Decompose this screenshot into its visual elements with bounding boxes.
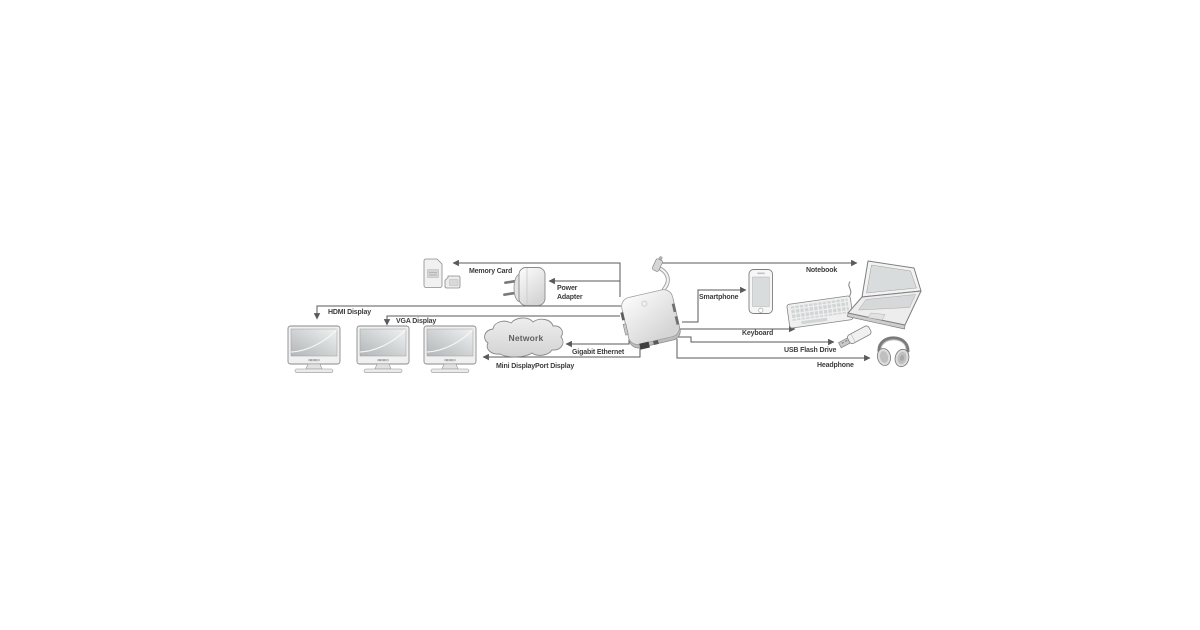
hdmi-display-label: HDMI Display — [328, 309, 371, 316]
network-cloud-icon: Network — [485, 318, 563, 357]
usb-flash-drive-arrow — [678, 337, 834, 342]
vga-display-label: VGA Display — [396, 318, 436, 325]
keyboard-icon — [785, 282, 856, 329]
headphone-label: Headphone — [817, 362, 854, 369]
gigabit-ethernet-arrow — [566, 339, 629, 344]
notebook-icon — [848, 261, 922, 329]
hdmi-monitor-icon — [288, 326, 340, 373]
gigabit-ethernet-label: Gigabit Ethernet — [572, 349, 625, 356]
power-adapter-label-line2: Adapter — [557, 294, 583, 301]
usb-flash-drive-icon — [838, 325, 873, 349]
vga-monitor-icon — [357, 326, 409, 373]
smartphone-label: Smartphone — [699, 294, 739, 301]
mini-displayport-display-label: Mini DisplayPort Display — [496, 363, 574, 370]
usb-flash-drive-label: USB Flash Drive — [784, 347, 836, 354]
notebook-label: Notebook — [806, 267, 837, 274]
diagram-canvas: Network — [0, 0, 1200, 630]
network-label: Network — [509, 333, 544, 343]
headphone-icon — [876, 338, 911, 368]
power-adapter-label-line1: Power — [557, 285, 578, 292]
keyboard-label: Keyboard — [742, 330, 773, 337]
dock-icon — [617, 255, 682, 352]
smartphone-icon — [749, 270, 773, 314]
memory-card-label: Memory Card — [469, 268, 512, 275]
dock-connectivity-diagram: Network — [0, 0, 1200, 630]
mini-displayport-monitor-icon — [424, 326, 476, 373]
